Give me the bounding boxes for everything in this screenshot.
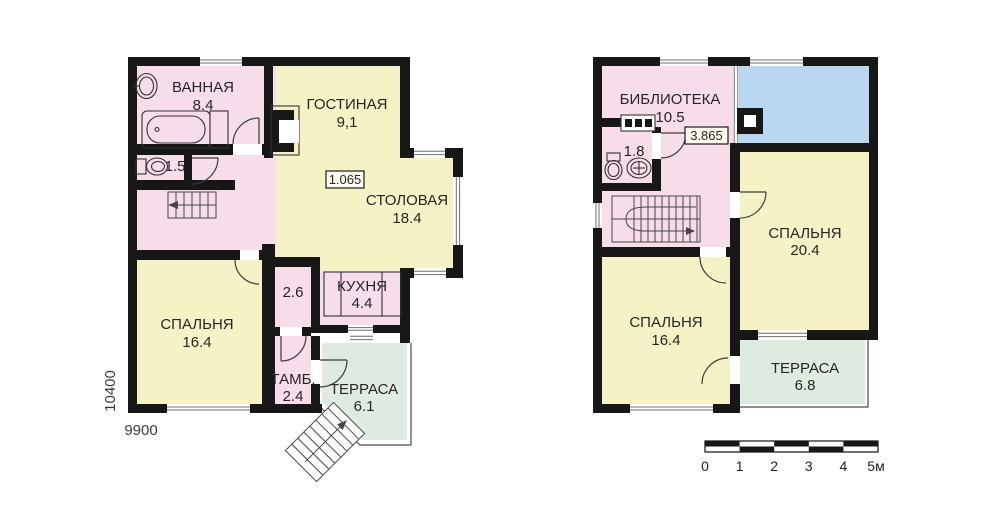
room-label-bedroom1: СПАЛЬНЯ xyxy=(160,316,233,333)
room-area-bedroom-right: 20.4 xyxy=(790,242,819,259)
room-label-dining: СТОЛОВАЯ xyxy=(366,192,448,209)
room-area-living: 9,1 xyxy=(337,114,358,131)
room-label-library: БИБЛИОТЕКА xyxy=(620,91,721,108)
room-label-bedroom-right: СПАЛЬНЯ xyxy=(768,225,841,242)
scale-tick-4: 4 xyxy=(840,458,848,474)
dimension-vertical: 10400 xyxy=(102,370,119,412)
room-label-vestibule: ТАМБ. xyxy=(270,371,315,388)
room-label-kitchen: КУХНЯ xyxy=(337,278,387,295)
room-label-bedroom-left: СПАЛЬНЯ xyxy=(629,314,702,331)
room-area-kitchen: 4.4 xyxy=(352,295,373,312)
floor1-living-dining-floor xyxy=(276,63,403,272)
room-label-terrace1: ТЕРРАСА xyxy=(330,381,398,398)
room-label-bathroom: ВАННАЯ xyxy=(172,79,234,96)
room-area-terrace1: 6.1 xyxy=(354,398,375,415)
room-area-bedroom-left: 16.4 xyxy=(651,332,680,349)
room-area-bedroom1: 16.4 xyxy=(182,334,211,351)
room-area-hall: 2.6 xyxy=(283,284,304,301)
floor2-roof-room-floor xyxy=(737,63,873,152)
scale-bar: 0 1 2 3 4 5м xyxy=(701,441,885,474)
scale-tick-3: 3 xyxy=(805,458,813,474)
floor1-plan: ВАННАЯ 8.4 1.5 ГОСТИНАЯ 9,1 СТОЛОВАЯ 18.… xyxy=(102,57,463,482)
dimension-horizontal: 9900 xyxy=(124,422,157,439)
room-area-vestibule: 2.4 xyxy=(283,388,304,405)
scale-tick-2: 2 xyxy=(770,458,778,474)
floorplan-page: ВАННАЯ 8.4 1.5 ГОСТИНАЯ 9,1 СТОЛОВАЯ 18.… xyxy=(0,0,1000,530)
scale-bar-ticks: 0 1 2 3 4 5м xyxy=(701,458,885,474)
room-area-terrace2: 6.8 xyxy=(795,377,816,394)
scale-tick-5: 5м xyxy=(867,458,884,474)
room-area-library: 10.5 xyxy=(655,109,684,126)
scale-tick-0: 0 xyxy=(701,458,709,474)
level-mark-floor2: 3.865 xyxy=(690,128,723,143)
room-label-terrace2: ТЕРРАСА xyxy=(771,360,839,377)
room-area-dining: 18.4 xyxy=(392,210,421,227)
room-area-bathroom: 8.4 xyxy=(193,97,214,114)
floor2-plan: БИБЛИОТЕКА 10.5 1.8 3.865 СПАЛЬНЯ 20.4 С… xyxy=(593,57,878,413)
level-mark-floor1: 1.065 xyxy=(329,172,362,187)
room-label-living: ГОСТИНАЯ xyxy=(307,96,388,113)
room-area-wc2: 1.8 xyxy=(624,143,645,160)
room-area-wc1: 1.5 xyxy=(165,158,186,175)
floorplan-canvas: ВАННАЯ 8.4 1.5 ГОСТИНАЯ 9,1 СТОЛОВАЯ 18.… xyxy=(0,0,1000,530)
scale-tick-1: 1 xyxy=(736,458,744,474)
